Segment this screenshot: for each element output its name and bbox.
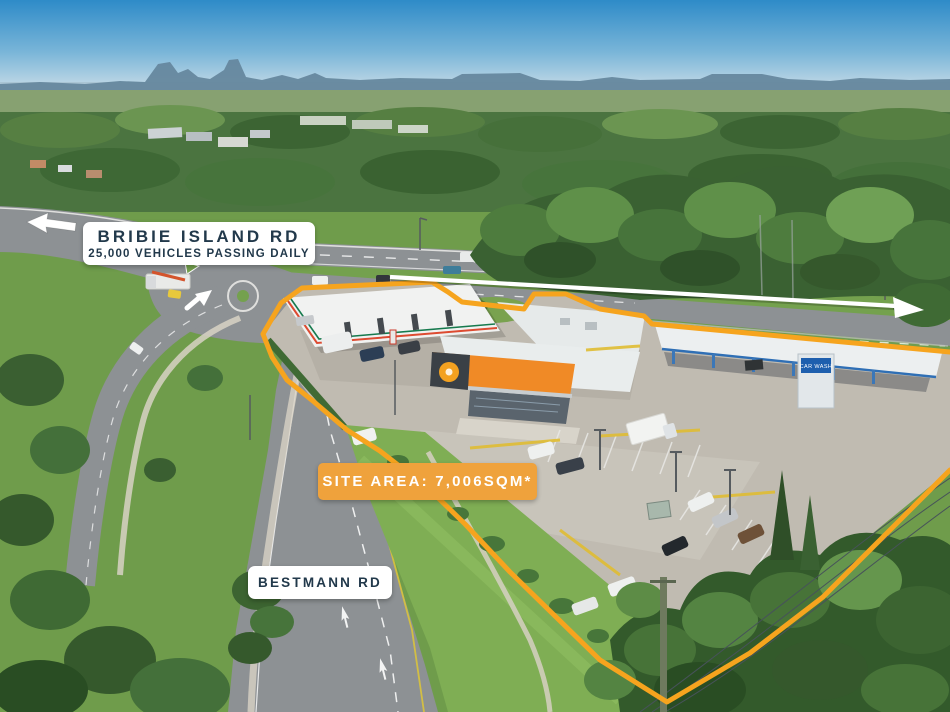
price-board bbox=[390, 330, 396, 344]
aerial-photo-canvas: CAR WASH bbox=[0, 0, 950, 712]
road-label-bestmann: BESTMANN RD bbox=[248, 566, 392, 599]
traffic-count-text: 25,000 VEHICLES PASSING DAILY bbox=[88, 247, 309, 261]
primary-road-name: BRIBIE ISLAND RD bbox=[98, 227, 301, 247]
crane-truck bbox=[146, 272, 190, 289]
site-area-text: SITE AREA: 7,006SQM* bbox=[322, 473, 532, 490]
car-wash-sign-text: CAR WASH bbox=[800, 364, 833, 370]
site-area-label: SITE AREA: 7,006SQM* bbox=[318, 463, 537, 500]
aerial-photo: CAR WASH bbox=[0, 0, 950, 712]
road-label-bribie-island: BRIBIE ISLAND RD 25,000 VEHICLES PASSING… bbox=[83, 222, 315, 265]
secondary-road-name: BESTMANN RD bbox=[258, 575, 382, 590]
electrical-cabinet bbox=[647, 501, 671, 520]
